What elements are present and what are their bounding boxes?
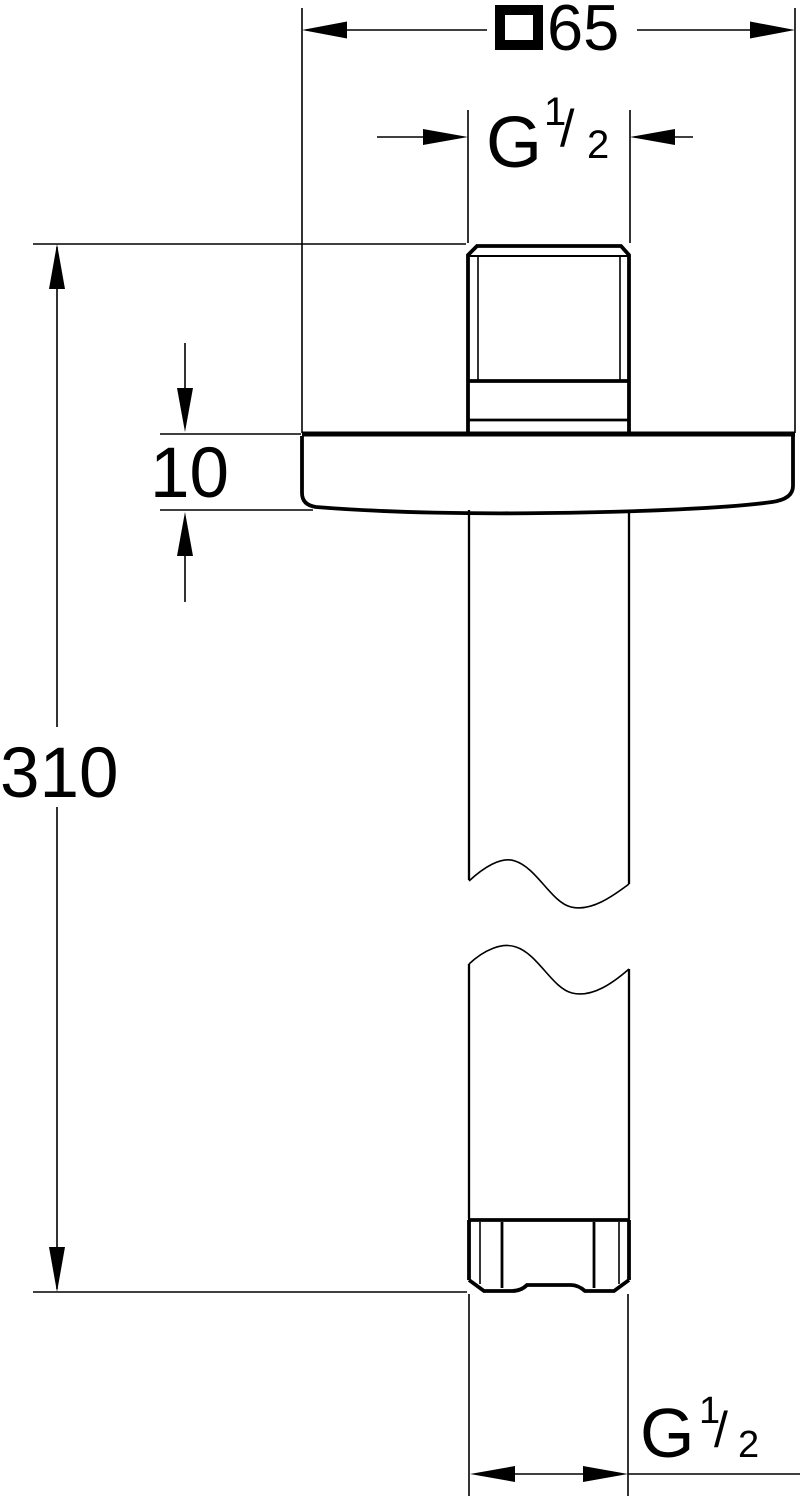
hex-bottom-outline <box>469 1280 629 1291</box>
part-top-thread-connector <box>468 246 629 434</box>
arrowhead-right-icon <box>583 1466 628 1482</box>
square-symbol-icon <box>500 10 538 45</box>
dim-thread-bottom-letter: G <box>640 1394 694 1472</box>
dim-thread-bottom-slash: / <box>714 1402 728 1458</box>
flange-outline <box>302 436 793 513</box>
thread-connector-outline <box>468 246 629 434</box>
dim-thread-top-slash: / <box>560 100 575 158</box>
arrowhead-up-icon <box>49 244 65 289</box>
dim-square-width-value: 65 <box>547 0 619 64</box>
dimension-square-width: 65 <box>302 0 795 433</box>
dimension-thread-bottom: G 1 / 2 <box>469 1294 800 1496</box>
dim-flange-thickness-value: 10 <box>150 434 229 513</box>
arrowhead-right-icon <box>750 22 795 39</box>
dim-thread-top-letter: G <box>486 103 542 183</box>
arrowhead-left-icon <box>470 1466 515 1482</box>
dim-thread-bottom-denominator: 2 <box>738 1424 759 1466</box>
arrowhead-right-icon <box>630 129 675 145</box>
dimension-thread-top: G 1 / 2 <box>377 90 693 243</box>
part-pipe <box>469 510 629 1219</box>
arrowhead-left-icon <box>423 129 468 145</box>
technical-drawing-page: 65 G 1 / 2 310 <box>0 0 800 1500</box>
dim-overall-length-value: 310 <box>0 734 118 813</box>
arrowhead-down-icon <box>177 388 193 432</box>
part-hex-fitting <box>468 1220 630 1291</box>
technical-drawing-canvas: 65 G 1 / 2 310 <box>0 0 800 1500</box>
part-flange <box>302 434 795 513</box>
arrowhead-left-icon <box>302 22 347 39</box>
arrowhead-up-icon <box>177 512 193 556</box>
dimension-flange-thickness: 10 <box>150 343 313 602</box>
break-line-lower <box>469 946 629 994</box>
break-line-upper <box>469 860 629 908</box>
dimension-overall-length: 310 <box>0 244 467 1292</box>
arrowhead-down-icon <box>49 1247 65 1292</box>
dim-thread-top-denominator: 2 <box>587 123 609 167</box>
